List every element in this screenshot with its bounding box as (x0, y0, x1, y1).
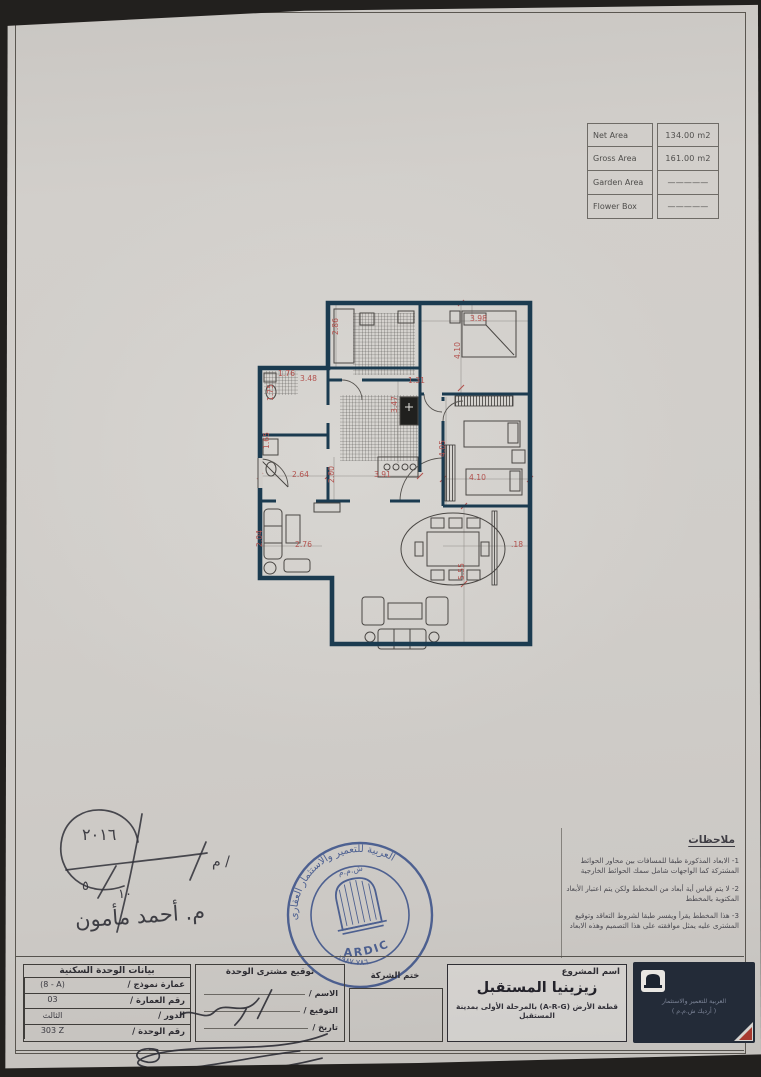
unit-row-value: الثالث (24, 1009, 80, 1024)
area-row-label: Garden Area (587, 171, 653, 195)
project-description: قطعة الأرض (A-R-G) بالمرحلة الأولى بمدين… (454, 1002, 620, 1020)
handwritten-prefix: م / (212, 854, 230, 870)
dimension-label: 3.98 (470, 314, 487, 323)
area-row-value: ————— (657, 195, 719, 219)
dimension-label: .18 (511, 540, 523, 549)
area-row-label: Flower Box (587, 195, 653, 219)
dimension-label: 3.47 (390, 396, 399, 413)
logo-glyph (641, 970, 665, 992)
logo-text-line1: العربية للتعمير والاستثمار (633, 998, 755, 1005)
unit-table-title: بيانات الوحدة السكنية (24, 965, 190, 978)
dimension-label: 2.00 (327, 466, 336, 483)
dimension-label: 1.75 (266, 384, 275, 401)
note-item: 1- الابعاد المذكورة طبقا للمسافات بين مح… (562, 856, 739, 877)
dimension-label: 2.64 (292, 470, 309, 479)
floorplan-drawing: 2.863.984.101.763.481.311.753.471.654.05… (250, 297, 535, 653)
area-row-label: Net Area (587, 123, 653, 147)
dimension-label: 5.55 (457, 563, 466, 580)
buyer-signature-scribble (93, 978, 386, 1077)
logo-triangle-red (739, 1027, 752, 1040)
stamp-arch-logo (328, 874, 388, 935)
notes-title: ملاحظات (688, 834, 735, 846)
project-label: اسم المشروع (454, 967, 620, 977)
handwritten-year: ٢٠١٦ (82, 825, 116, 844)
notes-block: ملاحظات 1- الابعاد المذكورة طبقا للمسافا… (561, 828, 745, 958)
area-row-label: Gross Area (587, 147, 653, 171)
dimension-label: 4.10 (453, 342, 462, 359)
note-item: 3- هذا المخطط يقرأ ويفسر طبقا لشروط التع… (562, 911, 739, 932)
dimension-label: 2.86 (331, 318, 340, 335)
handwritten-name: م. أحمد مأمون (74, 897, 206, 933)
signature-box-title: توقيع مشترى الوحدة (202, 967, 338, 977)
area-row-value: ————— (657, 171, 719, 195)
unit-row-value: 03 (24, 994, 80, 1009)
hatched-floors (264, 313, 418, 461)
unit-row-value: (8 - A) (24, 978, 80, 993)
handwritten-number-left: ٥ (82, 879, 89, 894)
dimension-label: 4.05 (438, 440, 447, 457)
project-name: زيزينيا المستقبل (454, 980, 620, 996)
paper-sheet: Net Area134.00 m2Gross Area161.00 m2Gard… (0, 0, 761, 1077)
scanned-floorplan-page: Net Area134.00 m2Gross Area161.00 m2Gard… (0, 0, 761, 1077)
handwritten-annotations: ٢٠١٦ ٥ ١٠ م / م. أحمد مأمون (20, 780, 280, 950)
dimension-label: 3.91 (374, 470, 391, 479)
dimension-label: 1.76 (278, 369, 295, 378)
area-summary-table: Net Area134.00 m2Gross Area161.00 m2Gard… (587, 123, 720, 219)
dimension-label: 3.48 (300, 374, 317, 383)
dimension-label: 1.65 (262, 432, 271, 449)
handwritten-number-right: ١٠ (118, 887, 132, 902)
project-box: اسم المشروع زيزينيا المستقبل قطعة الأرض … (447, 964, 627, 1042)
dimension-label: 2.04 (255, 530, 264, 547)
note-item: 2- لا يتم قياس أية أبعاد من المخطط ولكن … (562, 884, 739, 905)
area-row-value: 134.00 m2 (657, 123, 719, 147)
dimension-label: 4.10 (469, 473, 486, 482)
stamp-inner-top: ش.م.م (337, 863, 363, 877)
company-logo-box: العربية للتعمير والاستثمار ( أرديك ش.م.م… (633, 962, 755, 1043)
area-row-value: 161.00 m2 (657, 147, 719, 171)
logo-text-line2: ( أرديك ش.م.م ) (633, 1008, 755, 1015)
dimension-label: 1.31 (408, 376, 425, 385)
dimension-label: 2.76 (295, 540, 312, 549)
unit-row-value: 303 Z (24, 1025, 80, 1040)
